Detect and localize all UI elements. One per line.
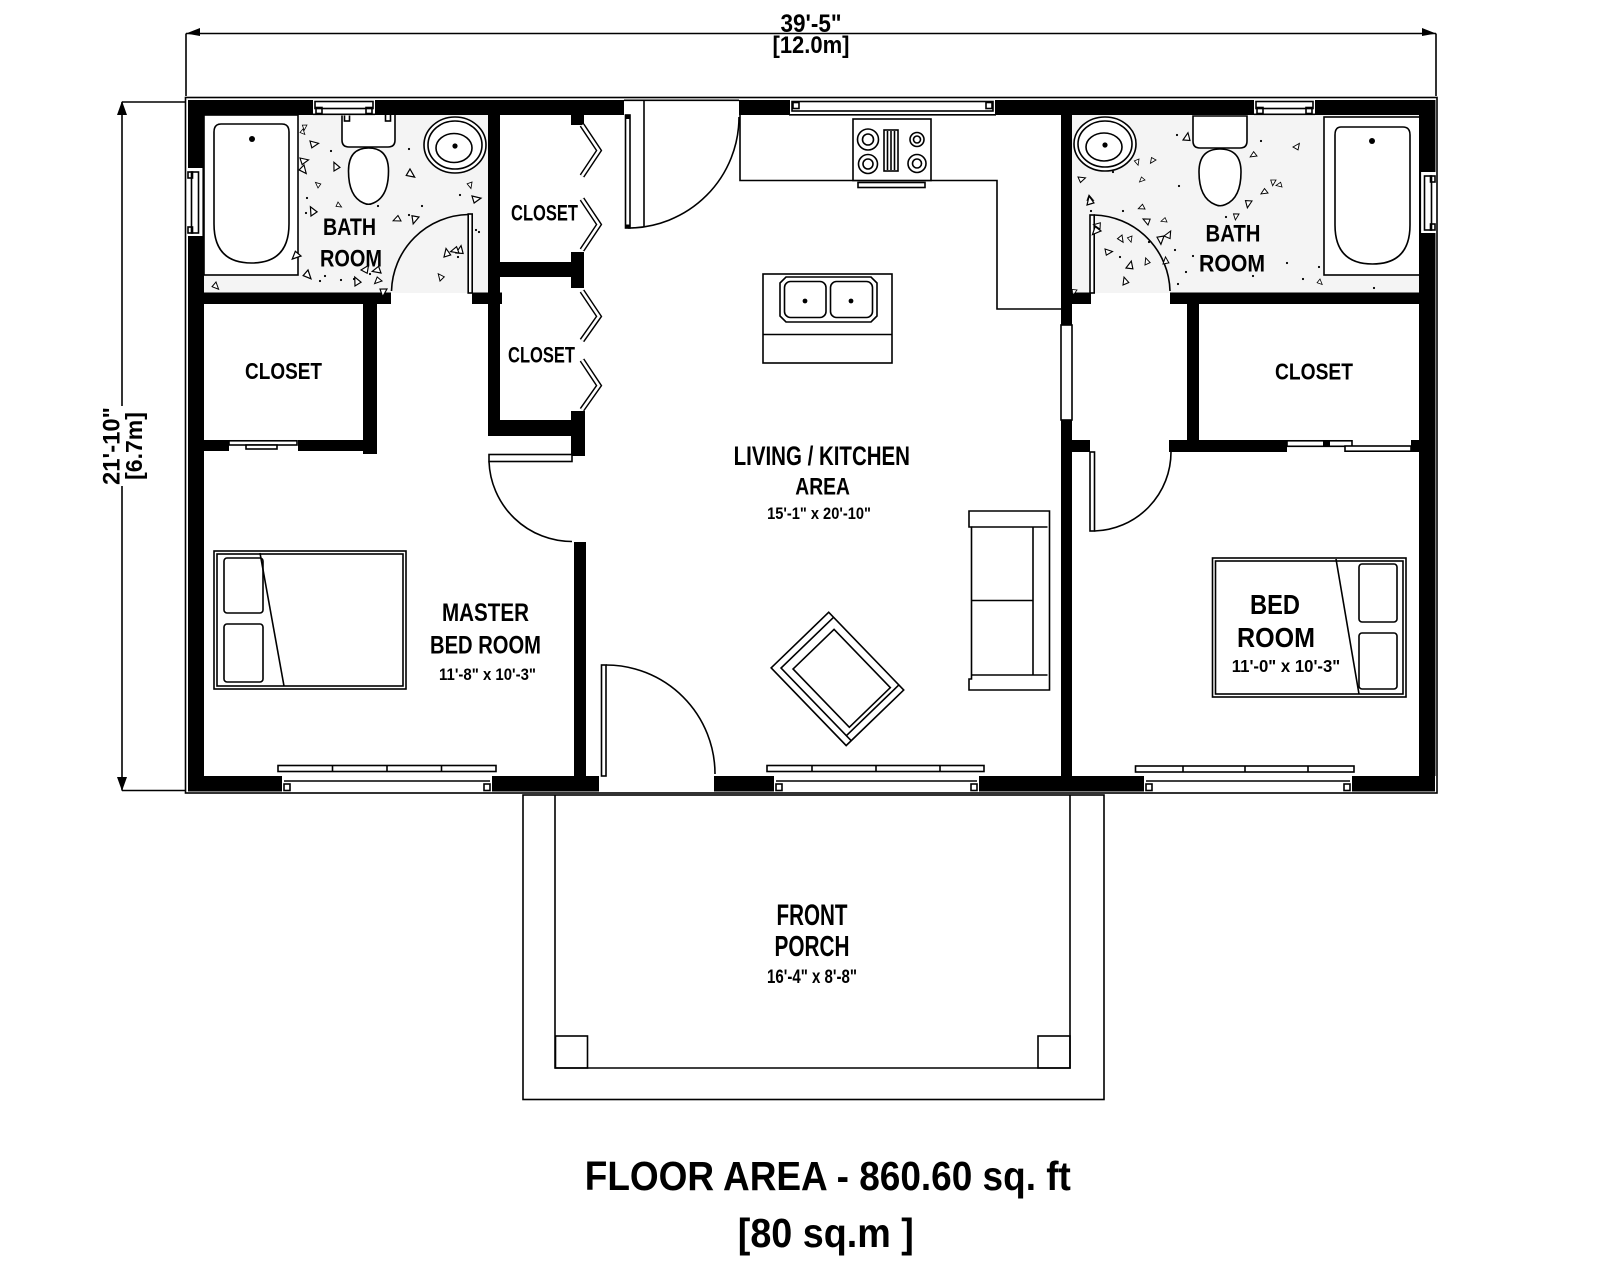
svg-text:15'-1" x 20'-10": 15'-1" x 20'-10" [767, 505, 871, 523]
svg-text:PORCH: PORCH [775, 931, 850, 963]
svg-text:ROOM: ROOM [1237, 622, 1315, 654]
svg-text:CLOSET: CLOSET [511, 201, 578, 226]
svg-text:BATH: BATH [1206, 220, 1261, 247]
svg-text:[12.0m]: [12.0m] [773, 31, 850, 58]
svg-text:[80 sq.m ]: [80 sq.m ] [738, 1212, 914, 1256]
svg-text:CLOSET: CLOSET [1275, 359, 1353, 385]
svg-text:FLOOR AREA - 860.60 sq. ft: FLOOR AREA - 860.60 sq. ft [585, 1154, 1071, 1199]
svg-text:AREA: AREA [795, 472, 850, 500]
svg-text:11'-8" x 10'-3": 11'-8" x 10'-3" [439, 666, 536, 684]
svg-text:BATH: BATH [323, 213, 376, 241]
svg-text:11'-0" x 10'-3": 11'-0" x 10'-3" [1232, 655, 1340, 676]
svg-text:ROOM: ROOM [1199, 249, 1265, 277]
svg-text:ROOM: ROOM [320, 245, 382, 272]
svg-text:CLOSET: CLOSET [245, 359, 322, 384]
svg-text:FRONT: FRONT [777, 899, 848, 932]
svg-text:BED ROOM: BED ROOM [430, 630, 541, 659]
svg-text:MASTER: MASTER [442, 598, 529, 626]
svg-text:BED: BED [1250, 590, 1300, 620]
svg-text:[6.7m]: [6.7m] [121, 412, 147, 480]
svg-text:16'-4" x 8'-8": 16'-4" x 8'-8" [767, 965, 857, 987]
svg-text:CLOSET: CLOSET [508, 343, 575, 368]
svg-text:LIVING / KITCHEN: LIVING / KITCHEN [734, 441, 910, 471]
